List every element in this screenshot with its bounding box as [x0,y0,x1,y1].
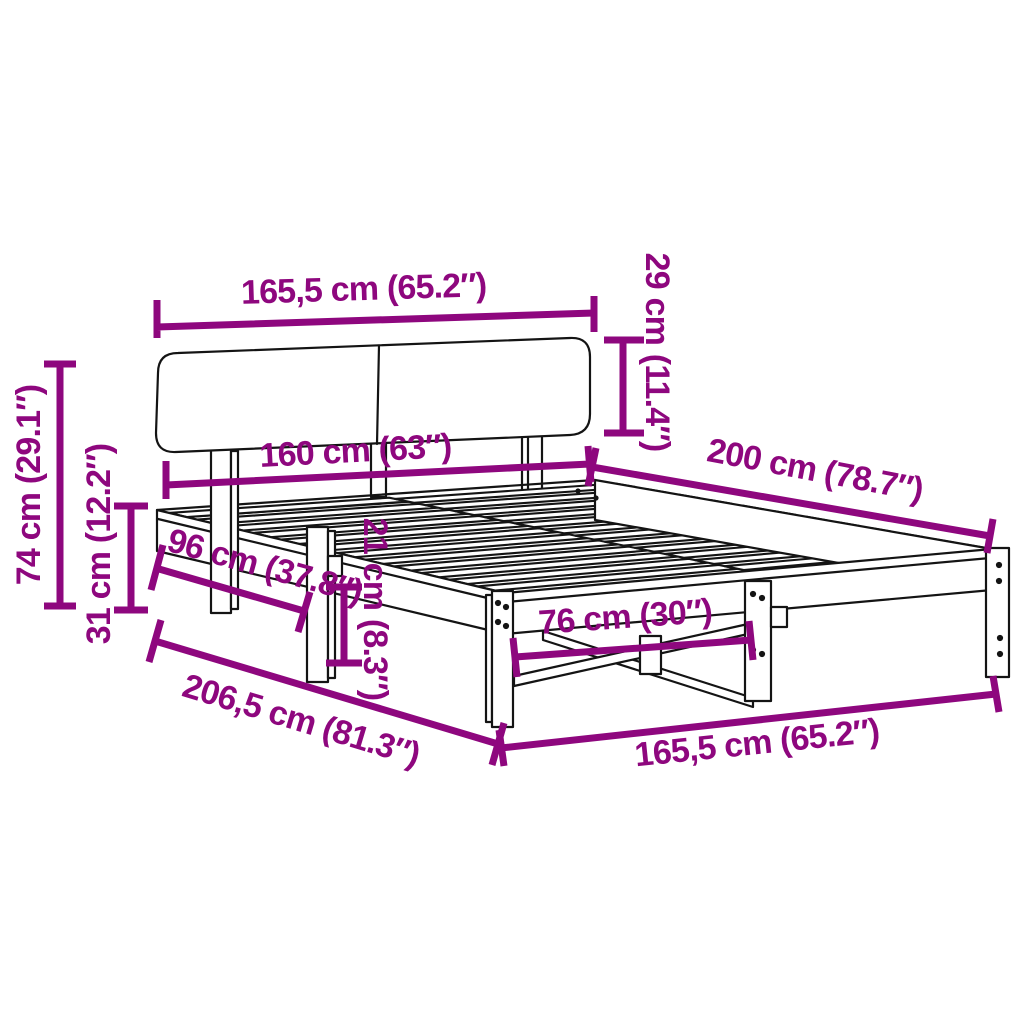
dim-label-headboard-height: 29 cm (11.4″) [638,253,676,452]
foot-left-leg [492,591,513,727]
rail-bracket-right [771,607,787,627]
dim-label-frame-edge-height: 21 cm (8.3″) [356,518,394,700]
center-support-leg [640,636,661,674]
dimension-headboard-width: 165,5 cm (65.2″) [157,266,594,338]
diagram-canvas: 165,5 cm (65.2″) 29 cm (11.4″) 160 cm (6… [0,0,1024,1024]
bed-frame-dimension-diagram: 165,5 cm (65.2″) 29 cm (11.4″) 160 cm (6… [0,0,1024,1024]
dimension-under-frame-height: 31 cm (12.2″) [80,444,148,645]
dim-label-frame-length: 200 cm (78.7″) [704,431,926,509]
dim-label-total-height: 74 cm (29.1″) [10,385,48,586]
bed-drawing [156,338,1009,727]
dimension-total-height: 74 cm (29.1″) [10,364,76,606]
left-mid-leg [307,527,328,682]
dim-label-headboard-width: 165,5 cm (65.2″) [240,266,486,312]
dimension-headboard-height: 29 cm (11.4″) [604,253,676,452]
dim-label-under-frame-height: 31 cm (12.2″) [80,444,118,645]
headboard-right-leg [522,433,542,491]
